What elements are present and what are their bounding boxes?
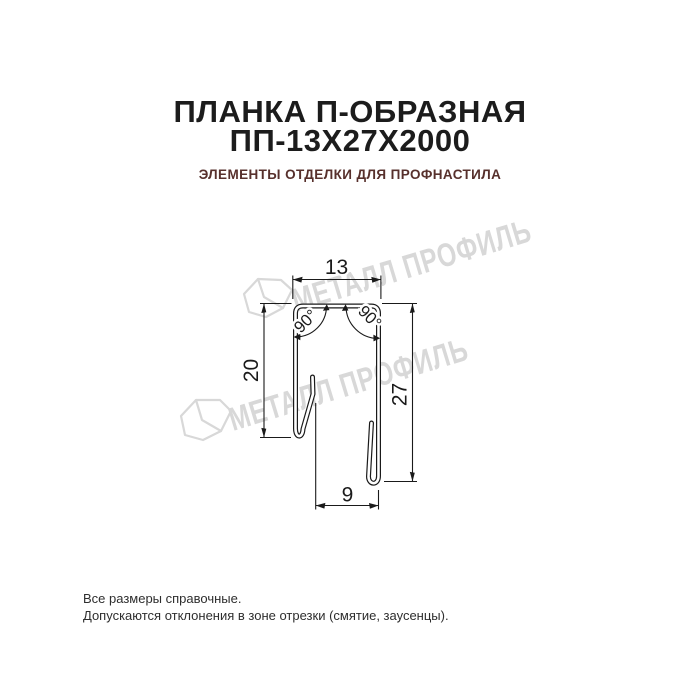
dimension-top-width-label: 13 <box>325 256 348 279</box>
dimension-right-height: 27 <box>382 304 417 482</box>
footer-notes: Все размеры справочные. Допускаются откл… <box>83 591 449 624</box>
watermark-text: МЕТАЛЛ ПРОФИЛЬ <box>225 332 473 439</box>
dimension-bottom-width-label: 9 <box>342 484 354 507</box>
dimension-right-height-label: 27 <box>389 383 412 406</box>
metall-profil-logo-icon <box>181 400 231 440</box>
dimension-left-height-label: 20 <box>240 359 263 382</box>
product-drawing-page: ПЛАНКА П-ОБРАЗНАЯ ПП-13Х27Х2000 ЭЛЕМЕНТЫ… <box>0 0 700 700</box>
watermark-lower: МЕТАЛЛ ПРОФИЛЬ <box>181 332 473 440</box>
footer-note-2: Допускаются отклонения в зоне отрезки (с… <box>83 608 449 625</box>
footer-note-1: Все размеры справочные. <box>83 591 449 608</box>
metall-profil-logo-icon <box>244 279 292 317</box>
